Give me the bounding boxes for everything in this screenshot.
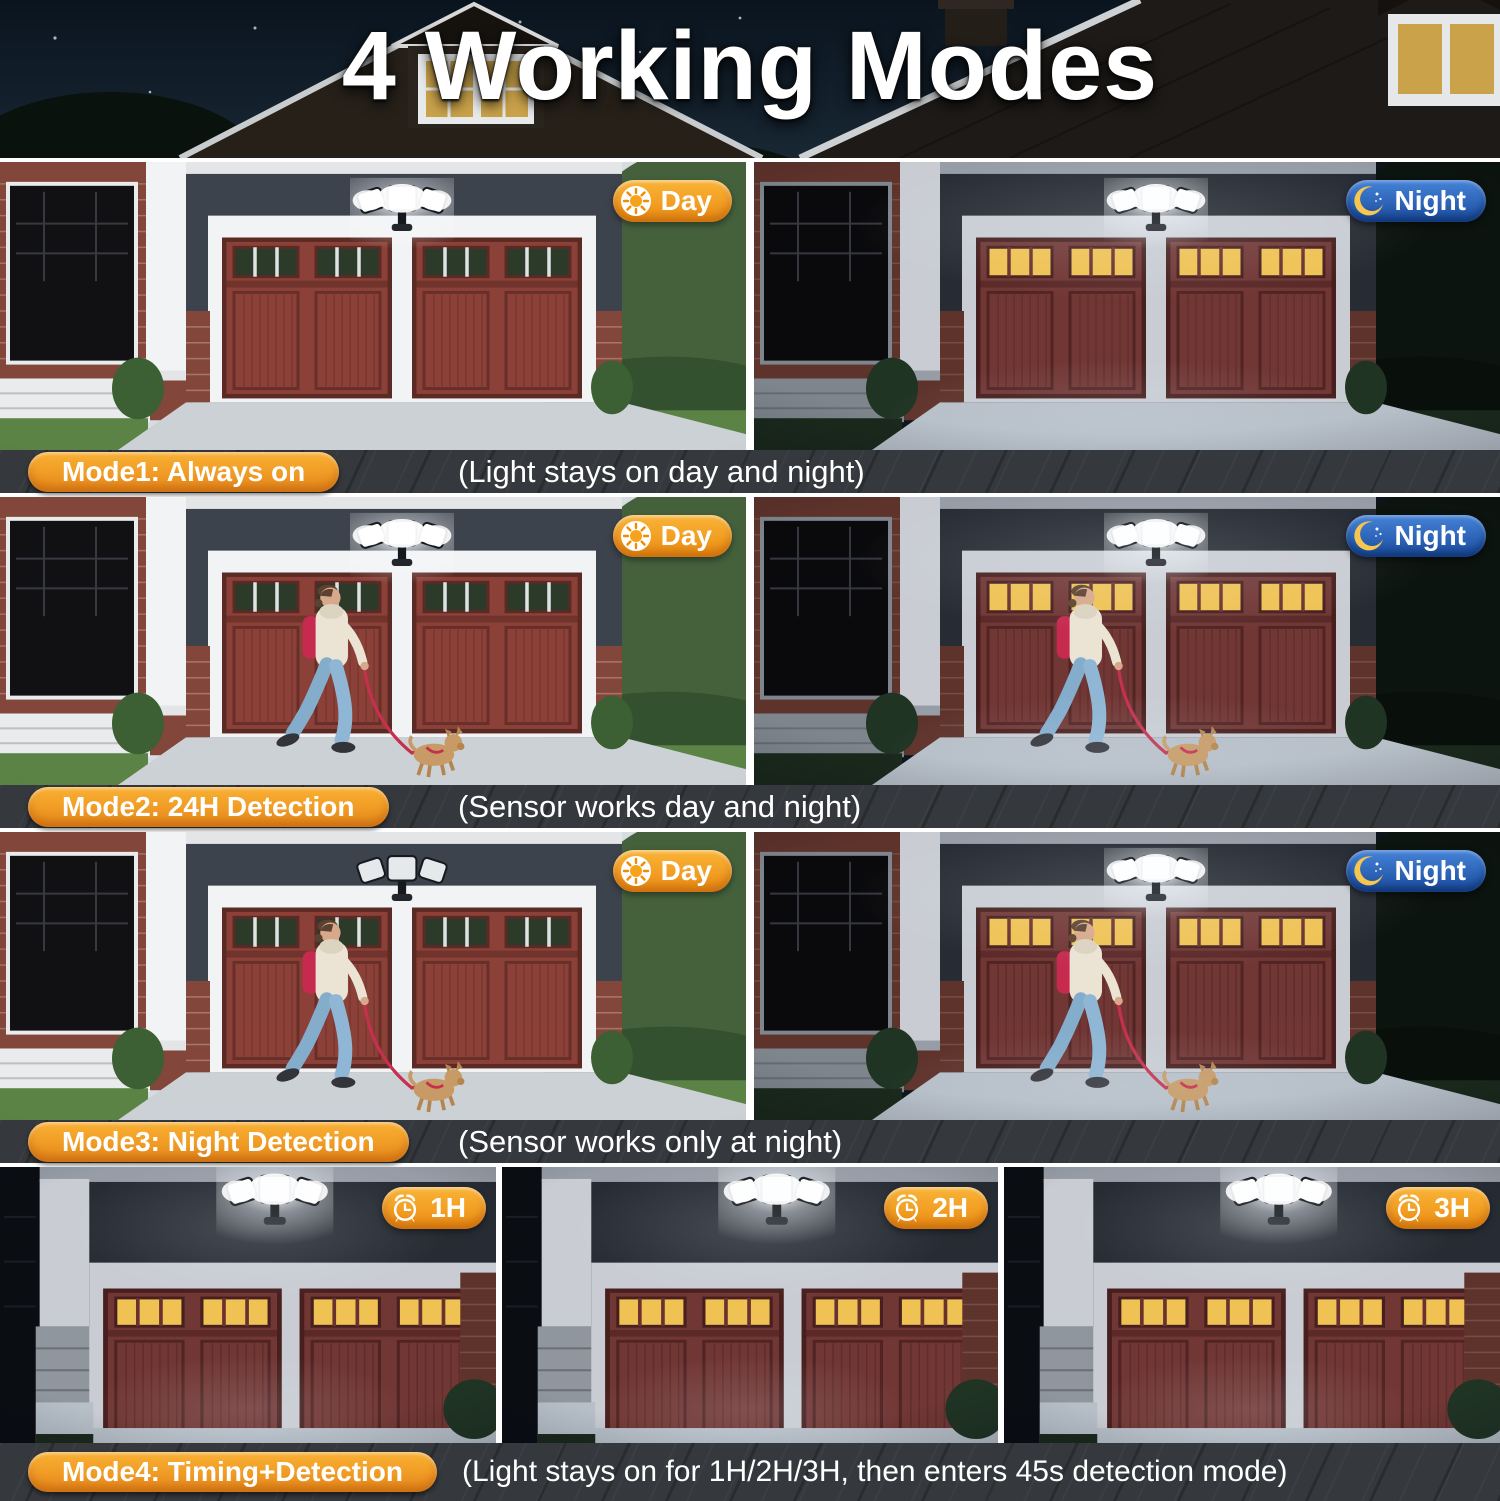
person-walking-dog [1015,581,1246,780]
day-badge: Day [613,180,732,222]
badge-label: Night [1394,857,1466,885]
mode2-caption: Mode2: 24H Detection (Sensor works day a… [0,785,1500,832]
night-badge: Night [1346,180,1486,222]
badge-label: Night [1394,522,1466,550]
mode3-pill: Mode3: Night Detection [28,1122,409,1162]
product-infographic: 4 Working Modes Day Night Mode1: Always … [0,0,1500,1500]
sun-icon [620,855,652,887]
timer-badge-1h: 1H [382,1187,486,1229]
mode4-row: 1H 2H 3H [0,1167,1500,1443]
mode2-pill: Mode2: 24H Detection [28,787,389,827]
moon-icon [1353,855,1385,887]
mode3-day-panel: Day [0,832,746,1120]
timer-badge-2h: 2H [884,1187,988,1229]
alarm-clock-icon [1393,1192,1425,1224]
mode3-description: (Sensor works only at night) [458,1124,842,1160]
mode3-night-panel: Night [754,832,1500,1120]
badge-label: 3H [1434,1194,1470,1222]
person-walking-dog [1015,916,1246,1115]
badge-label: 2H [932,1194,968,1222]
day-badge: Day [613,850,732,892]
badge-label: Day [661,857,712,885]
mode4-caption: Mode4: Timing+Detection (Light stays on … [0,1443,1500,1501]
mode2-row: Day Night [0,497,1500,785]
mode2-night-panel: Night [754,497,1500,785]
mode4-1h-panel: 1H [0,1167,496,1443]
person-walking-dog [261,581,492,780]
mode4-pill: Mode4: Timing+Detection [28,1452,437,1492]
mode3-row: Day Night [0,832,1500,1120]
mode4-2h-panel: 2H [502,1167,998,1443]
mode4-3h-panel: 3H [1004,1167,1500,1443]
timer-badge-3h: 3H [1386,1187,1490,1229]
sun-icon [620,520,652,552]
mode3-caption: Mode3: Night Detection (Sensor works onl… [0,1120,1500,1167]
mode1-row: Day Night [0,162,1500,450]
badge-label: 1H [430,1194,466,1222]
badge-label: Night [1394,187,1466,215]
header-banner: 4 Working Modes [0,0,1500,162]
alarm-clock-icon [891,1192,923,1224]
mode1-night-panel: Night [754,162,1500,450]
page-title: 4 Working Modes [0,10,1500,122]
sun-icon [620,185,652,217]
day-badge: Day [613,515,732,557]
mode1-pill: Mode1: Always on [28,452,339,492]
night-badge: Night [1346,850,1486,892]
alarm-clock-icon [389,1192,421,1224]
moon-icon [1353,185,1385,217]
mode2-day-panel: Day [0,497,746,785]
mode4-description: (Light stays on for 1H/2H/3H, then enter… [462,1455,1287,1489]
mode1-day-panel: Day [0,162,746,450]
badge-label: Day [661,187,712,215]
person-walking-dog [261,916,492,1115]
moon-icon [1353,520,1385,552]
mode2-description: (Sensor works day and night) [458,789,861,825]
mode1-description: (Light stays on day and night) [458,454,865,490]
mode1-caption: Mode1: Always on (Light stays on day and… [0,450,1500,497]
badge-label: Day [661,522,712,550]
night-badge: Night [1346,515,1486,557]
